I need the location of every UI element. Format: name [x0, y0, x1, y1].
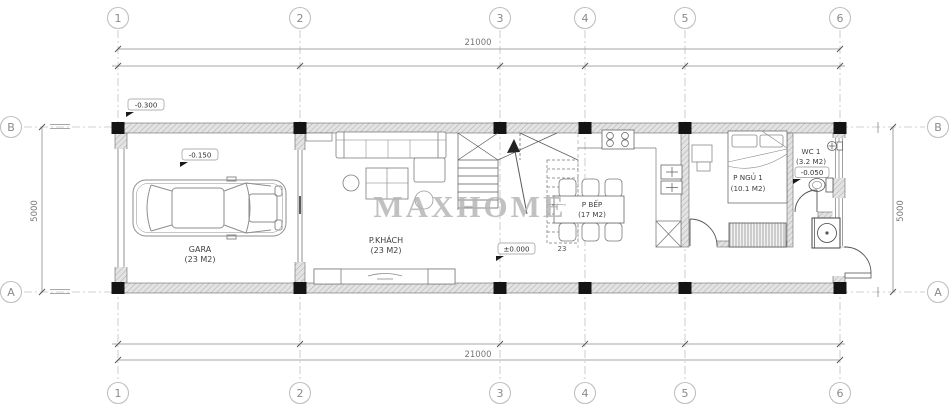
floor-plan-drawing: 21000 21000 5000 5000 — [0, 0, 949, 412]
sliding-door-garage-living — [295, 150, 306, 262]
grid-row-b-right: B — [934, 121, 942, 134]
wall-niche — [306, 133, 332, 141]
bedroom-door — [690, 219, 717, 246]
laundry-box — [812, 218, 840, 248]
dim-bottom: 21000 — [464, 350, 491, 360]
wardrobe-icon — [729, 223, 786, 247]
wc-door — [795, 190, 817, 212]
garage-room: GARA (23 M2) — [133, 177, 286, 264]
kitchen: P BẾP (17 M2) — [548, 130, 682, 247]
grid-col-6-top: 6 — [837, 12, 844, 25]
grid-col-3-bottom: 3 — [497, 387, 504, 400]
grid-col-6-bottom: 6 — [837, 387, 844, 400]
room-area-bep: (17 M2) — [578, 210, 606, 219]
grid-row-a-left: A — [7, 286, 15, 299]
garage-door — [115, 149, 128, 267]
room-area-ngu1: (10.1 M2) — [731, 184, 766, 193]
room-area-wc1: (3.2 M2) — [796, 157, 826, 166]
desk-icon — [692, 145, 712, 171]
svg-text:±0.000: ±0.000 — [504, 246, 530, 254]
grid-col-4-top: 4 — [582, 12, 589, 25]
room-name-khach: P.KHÁCH — [369, 234, 403, 245]
entry-door-gap — [833, 248, 846, 276]
grid-col-1-bottom: 1 — [115, 387, 122, 400]
grid-col-5-top: 5 — [682, 12, 689, 25]
grid-col-5-bottom: 5 — [682, 387, 689, 400]
dim-left: 5000 — [30, 200, 40, 222]
floor-plan-canvas: 21000 21000 5000 5000 — [0, 0, 949, 412]
grid-col-1-top: 1 — [115, 12, 122, 25]
room-name-wc1: WC 1 — [802, 147, 821, 156]
dim-top: 21000 — [464, 38, 491, 48]
grid-col-2-top: 2 — [297, 12, 304, 25]
room-area-gara: (23 M2) — [185, 255, 216, 264]
level-outdoor: -0.300 — [126, 99, 164, 117]
cooktop-icon — [602, 130, 634, 149]
svg-text:-0.300: -0.300 — [135, 102, 158, 110]
grid-row-b-left: B — [7, 121, 15, 134]
room-area-khach: (23 M2) — [371, 246, 402, 255]
car-icon — [133, 177, 286, 239]
tv-console — [314, 269, 455, 284]
grid-col-4-bottom: 4 — [582, 387, 589, 400]
grid-col-3-top: 3 — [497, 12, 504, 25]
entry-door — [845, 247, 871, 278]
room-name-gara: GARA — [189, 245, 212, 254]
grid-col-2-bottom: 2 — [297, 387, 304, 400]
svg-text:-0.050: -0.050 — [801, 169, 824, 177]
room-name-ngu1: P NGỦ 1 — [733, 172, 763, 182]
svg-text:-0.150: -0.150 — [189, 152, 212, 160]
maxhome-watermark: MAXHOME — [373, 189, 566, 224]
grid-row-a-right: A — [934, 286, 942, 299]
dim-right: 5000 — [896, 200, 906, 222]
level-garage: -0.150 — [180, 149, 218, 167]
level-ground: ±0.000 — [496, 243, 535, 261]
bedroom: P NGỦ 1 (10.1 M2) — [690, 131, 787, 247]
shaft-box — [656, 221, 681, 247]
toilet-icon — [809, 178, 833, 192]
room-name-bep: P BẾP — [582, 199, 603, 209]
stair-step-count: 23 — [558, 245, 567, 253]
kitchen-sink-icon — [661, 165, 682, 194]
lavabo-icon — [828, 142, 843, 151]
